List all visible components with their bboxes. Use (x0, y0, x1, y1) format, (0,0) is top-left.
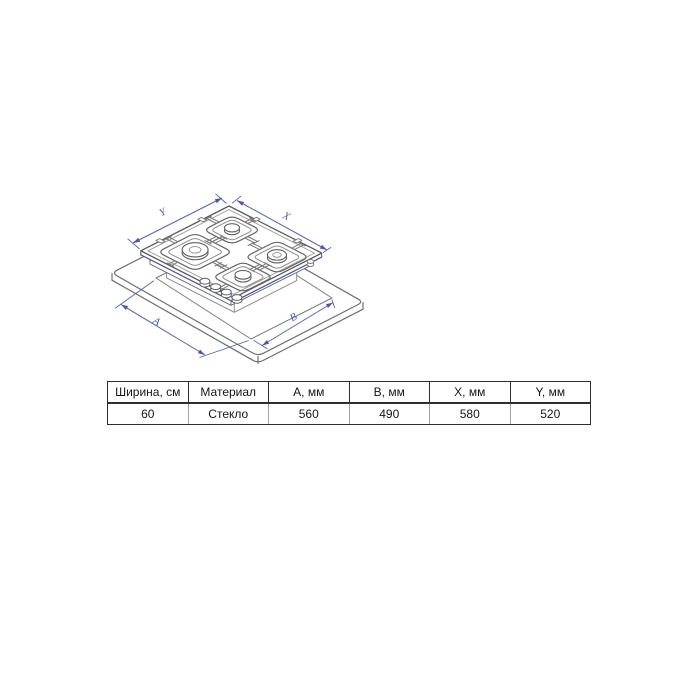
dimensions-table: Ширина, см Материал A, мм B, мм X, мм Y,… (107, 381, 591, 425)
dimension-label-y: Y (158, 206, 169, 219)
cell-material: Стекло (188, 404, 269, 424)
cell-width: 60 (108, 404, 188, 424)
hob-isometric-diagram: A B (0, 0, 700, 700)
dimension-label-x: X (280, 210, 292, 223)
table-header-row: Ширина, см Материал A, мм B, мм X, мм Y,… (108, 382, 590, 404)
corner-fitting (307, 260, 314, 267)
header-cell-b: B, мм (349, 382, 430, 402)
header-cell-a: A, мм (268, 382, 349, 402)
cell-x: 580 (429, 404, 510, 424)
cell-y: 520 (510, 404, 591, 424)
header-cell-material: Материал (188, 382, 269, 402)
table-data-row: 60 Стекло 560 490 580 520 (108, 404, 590, 424)
header-cell-x: X, мм (429, 382, 510, 402)
header-cell-width: Ширина, см (108, 382, 188, 402)
cell-b: 490 (349, 404, 430, 424)
spec-sheet-page: A B (0, 0, 700, 700)
dimension-label-a: A (150, 315, 163, 329)
cell-a: 560 (268, 404, 349, 424)
header-cell-y: Y, мм (510, 382, 591, 402)
